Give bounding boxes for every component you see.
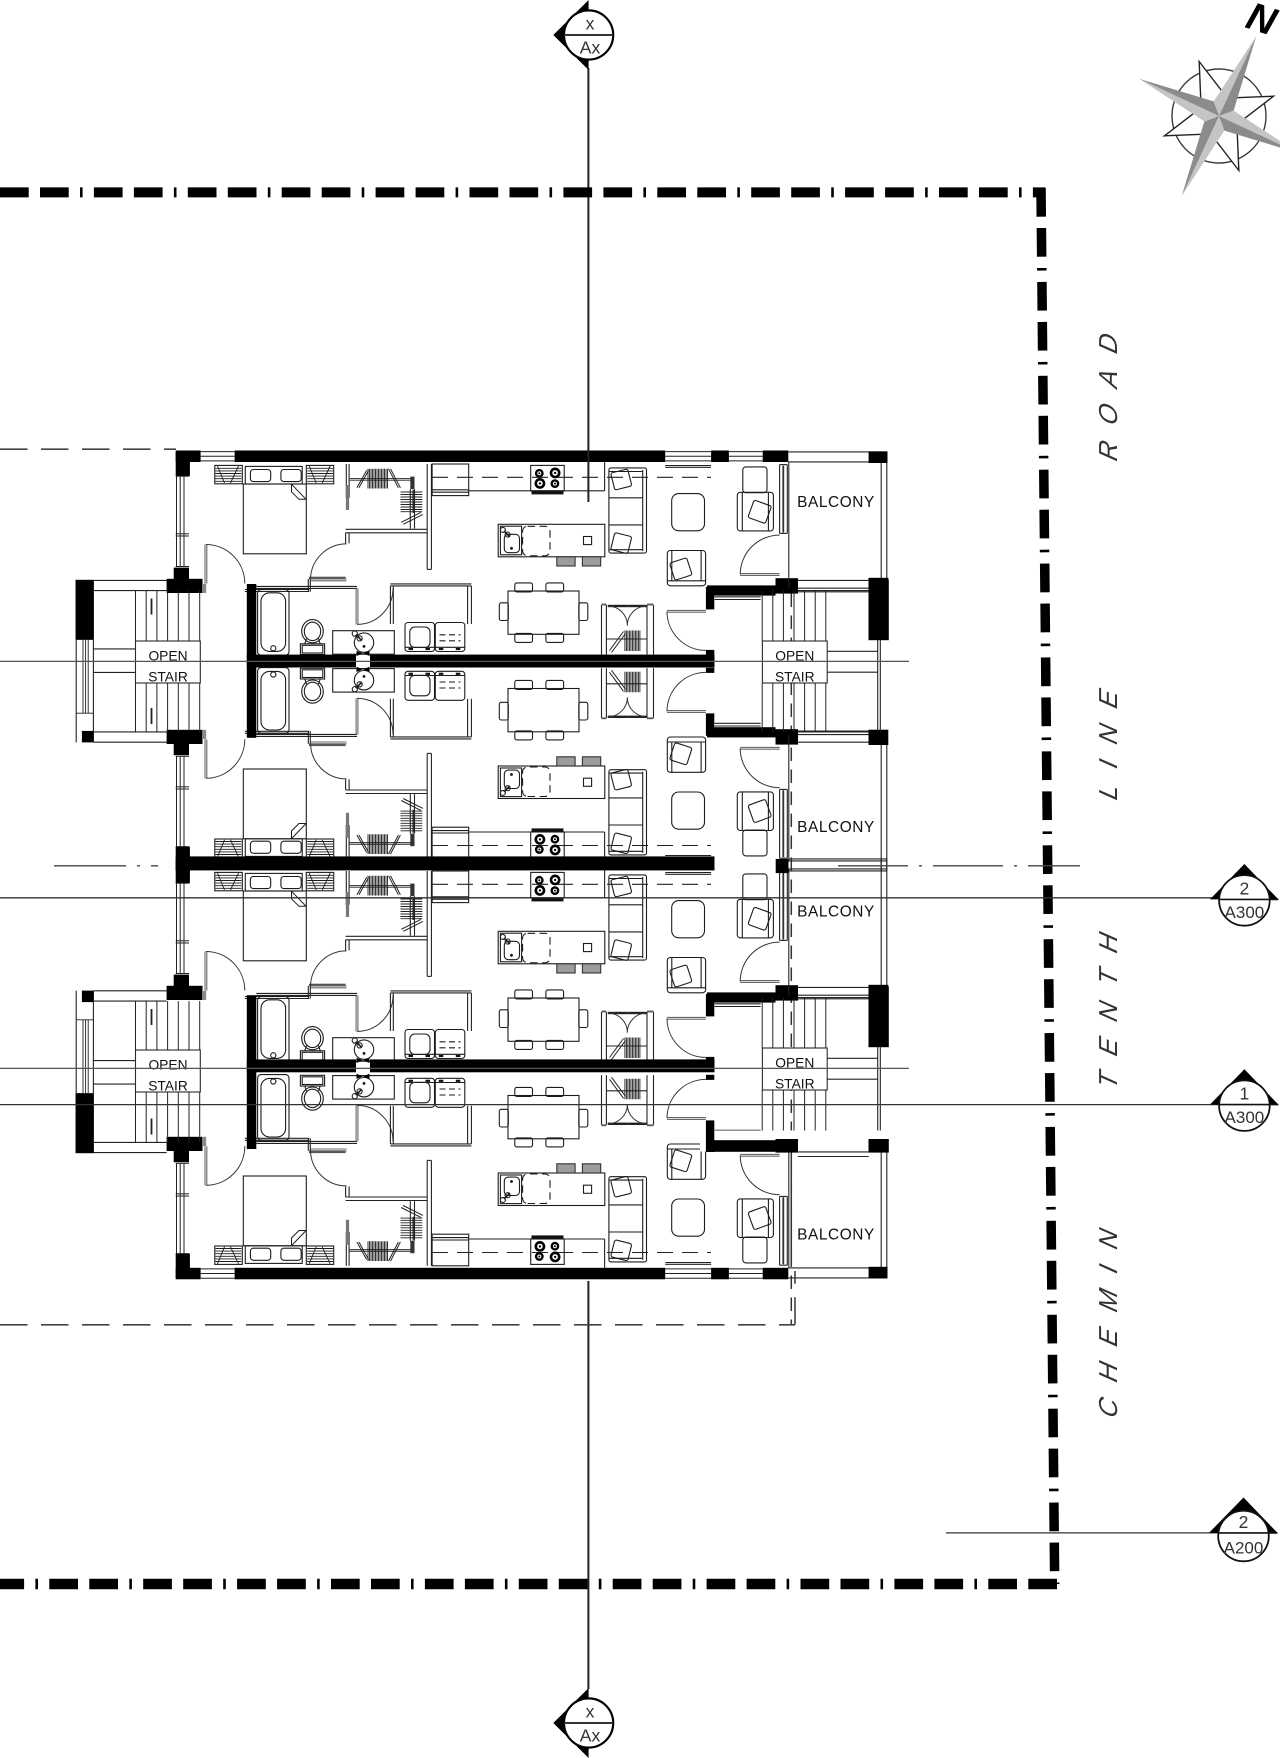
svg-text:2: 2 bbox=[1240, 879, 1250, 899]
svg-text:A300: A300 bbox=[1225, 1108, 1265, 1127]
svg-text:BALCONY: BALCONY bbox=[797, 819, 875, 836]
svg-text:Ax: Ax bbox=[580, 38, 601, 58]
svg-text:A200: A200 bbox=[1224, 1539, 1264, 1558]
svg-text:x: x bbox=[586, 14, 595, 34]
svg-text:TENTH: TENTH bbox=[1093, 912, 1123, 1091]
svg-text:STAIR: STAIR bbox=[148, 1079, 188, 1094]
svg-text:STAIR: STAIR bbox=[775, 1077, 815, 1092]
svg-text:OPEN: OPEN bbox=[148, 1058, 187, 1073]
svg-text:2: 2 bbox=[1239, 1512, 1249, 1532]
svg-text:Ax: Ax bbox=[580, 1726, 601, 1746]
svg-text:STAIR: STAIR bbox=[775, 670, 815, 685]
svg-text:x: x bbox=[586, 1702, 595, 1722]
svg-text:BALCONY: BALCONY bbox=[797, 1227, 875, 1244]
svg-text:LINE: LINE bbox=[1093, 669, 1123, 802]
svg-text:CHEMIN: CHEMIN bbox=[1093, 1209, 1123, 1421]
svg-text:STAIR: STAIR bbox=[148, 670, 188, 685]
svg-text:ROAD: ROAD bbox=[1093, 313, 1123, 463]
svg-text:1: 1 bbox=[1240, 1084, 1250, 1104]
svg-text:BALCONY: BALCONY bbox=[797, 494, 875, 511]
svg-text:BALCONY: BALCONY bbox=[797, 904, 875, 921]
svg-text:A300: A300 bbox=[1225, 903, 1265, 922]
